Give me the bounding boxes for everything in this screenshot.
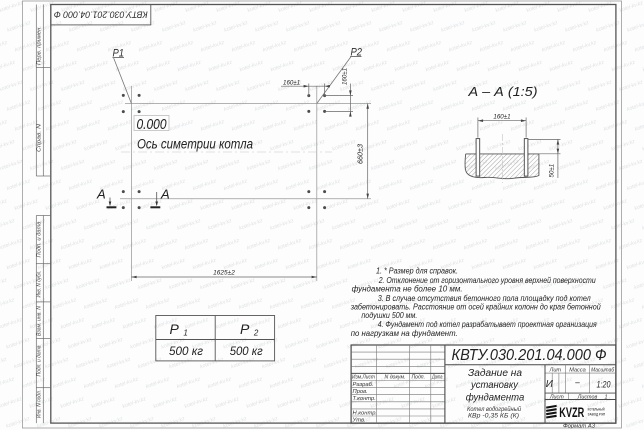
svg-text:50±1: 50±1 — [549, 164, 556, 178]
svg-text:N докум.: N докум. — [385, 375, 406, 381]
svg-text:1625±2: 1625±2 — [213, 270, 235, 277]
svg-text:Ось симетрии котла: Ось симетрии котла — [137, 136, 253, 151]
svg-text:KVZR: KVZR — [559, 405, 584, 420]
svg-text:И: И — [546, 379, 554, 390]
svg-text:500 кг: 500 кг — [169, 344, 203, 358]
svg-text:Лит: Лит — [548, 367, 561, 373]
svg-text:Масштаб: Масштаб — [591, 367, 615, 373]
svg-text:Масса: Масса — [569, 367, 586, 373]
svg-text:Задание на: Задание на — [468, 367, 522, 379]
svg-text:Изм.Лист: Изм.Лист — [352, 375, 375, 381]
svg-text:КВТУ.030.201.04.000 Ф: КВТУ.030.201.04.000 Ф — [53, 10, 148, 20]
svg-text:Разраб.: Разраб. — [353, 382, 374, 388]
svg-text:Справ. N: Справ. N — [36, 124, 42, 152]
svg-text:Н.контр.: Н.контр. — [353, 410, 378, 416]
svg-text:160±1: 160±1 — [283, 79, 300, 86]
svg-text:Дата: Дата — [431, 375, 442, 381]
svg-text:Инв. N дубл.: Инв. N дубл. — [36, 271, 42, 298]
svg-text:Т.контр.: Т.контр. — [353, 396, 376, 402]
svg-text:4. Фундамент под котел разраба: 4. Фундамент под котел разрабатывает про… — [378, 320, 598, 329]
svg-text:1. * Размер для справок.: 1. * Размер для справок. — [376, 266, 458, 275]
svg-text:Листов: Листов — [577, 394, 598, 400]
svg-text:Подп. и дата: Подп. и дата — [36, 221, 42, 257]
svg-text:ЗАВОД РЭП: ЗАВОД РЭП — [588, 412, 606, 416]
svg-text:0.000: 0.000 — [137, 116, 168, 133]
svg-text:Перв. примен.: Перв. примен. — [36, 26, 42, 65]
svg-text:Утв.: Утв. — [352, 418, 366, 424]
svg-text:А: А — [96, 187, 106, 202]
svg-text:Р1: Р1 — [170, 321, 188, 338]
svg-text:3. В случае отсутствия бетонно: 3. В случае отсутствия бетонного пола пл… — [378, 294, 591, 303]
svg-text:Подп.: Подп. — [412, 375, 426, 381]
svg-text:КВр -0,35 КБ (К): КВр -0,35 КБ (К) — [468, 412, 519, 419]
svg-text:фундамента: фундамента — [466, 391, 525, 403]
svg-text:1: 1 — [605, 394, 608, 400]
svg-text:фундамента не более 10 мм.: фундамента не более 10 мм. — [352, 285, 463, 294]
svg-text:КВТУ.030.201.04.000 Ф: КВТУ.030.201.04.000 Ф — [452, 347, 607, 364]
svg-text:по нагрузкам на фундамент.: по нагрузкам на фундамент. — [351, 329, 458, 338]
svg-text:160±1: 160±1 — [493, 113, 510, 120]
svg-text:подушки 500 мм.: подушки 500 мм. — [361, 311, 417, 320]
svg-text:160±1: 160±1 — [342, 68, 349, 85]
svg-text:А: А — [160, 187, 170, 202]
svg-text:установку: установку — [470, 379, 519, 391]
svg-text:Подп. и дата: Подп. и дата — [36, 345, 42, 376]
svg-text:500 кг: 500 кг — [230, 344, 263, 358]
svg-text:Лист: Лист — [549, 394, 564, 400]
svg-text:Взам. инв. N: Взам. инв. N — [36, 306, 42, 336]
svg-text:А – А (1:5): А – А (1:5) — [467, 84, 537, 99]
svg-text:–: – — [574, 378, 580, 387]
svg-text:Формат А3: Формат А3 — [563, 423, 596, 429]
svg-text:Пров.: Пров. — [353, 389, 368, 395]
svg-text:КОТЕЛЬНЫЙ: КОТЕЛЬНЫЙ — [588, 408, 605, 412]
svg-text:Инв. N подл.: Инв. N подл. — [36, 390, 42, 418]
svg-text:1:20: 1:20 — [597, 380, 612, 391]
svg-text:660±3: 660±3 — [358, 144, 365, 164]
